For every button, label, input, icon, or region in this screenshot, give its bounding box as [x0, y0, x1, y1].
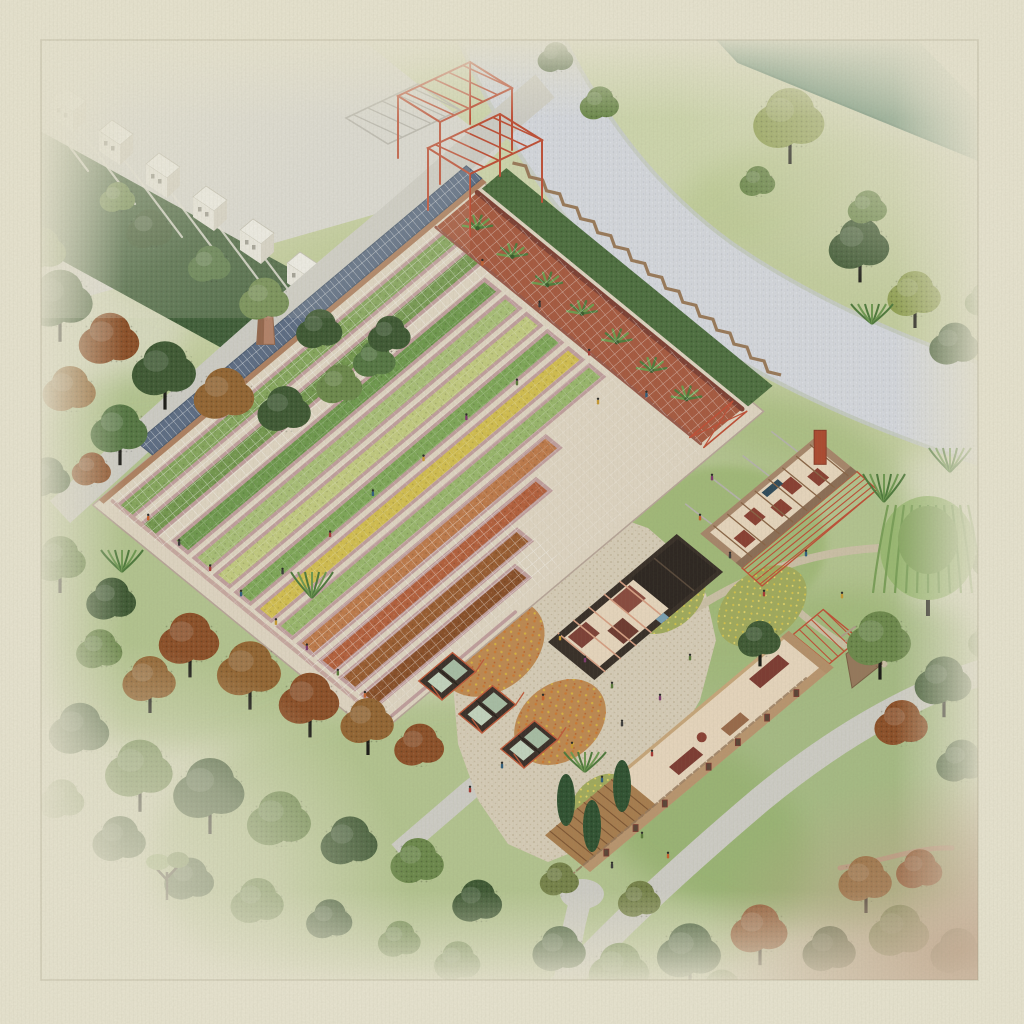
scene [0, 0, 1024, 1024]
paper-texture [0, 0, 1024, 1024]
illustration-page [0, 0, 1024, 1024]
site-plan-illustration [0, 0, 1024, 1024]
grain-overlay [0, 0, 1024, 1024]
